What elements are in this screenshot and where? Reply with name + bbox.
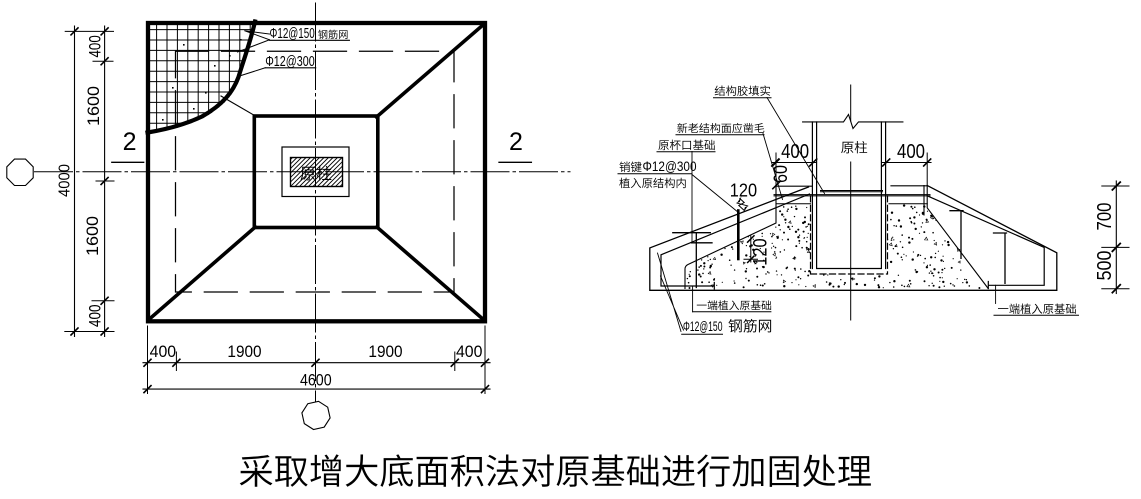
- svg-text:1900: 1900: [227, 342, 261, 361]
- svg-text:400: 400: [897, 140, 925, 163]
- svg-text:120: 120: [750, 238, 772, 265]
- svg-text:2: 2: [509, 128, 523, 156]
- svg-text:120: 120: [730, 181, 757, 201]
- svg-text:400: 400: [456, 342, 483, 361]
- svg-text:400: 400: [150, 342, 177, 361]
- svg-text:400: 400: [781, 140, 809, 163]
- svg-text:400: 400: [86, 35, 105, 57]
- svg-text:1600: 1600: [84, 86, 103, 126]
- svg-text:Φ12@300: Φ12@300: [643, 158, 697, 174]
- svg-text:4600: 4600: [300, 371, 332, 390]
- svg-text:700: 700: [1093, 203, 1116, 231]
- svg-text:400: 400: [86, 305, 105, 328]
- svg-text:Φ12@150: Φ12@150: [683, 318, 723, 334]
- svg-text:1600: 1600: [83, 216, 102, 256]
- svg-text:4000: 4000: [57, 164, 74, 197]
- svg-text:2: 2: [123, 128, 137, 156]
- svg-text:Φ12@150: Φ12@150: [270, 26, 315, 42]
- svg-text:500: 500: [1093, 251, 1116, 281]
- svg-text:1900: 1900: [368, 342, 402, 361]
